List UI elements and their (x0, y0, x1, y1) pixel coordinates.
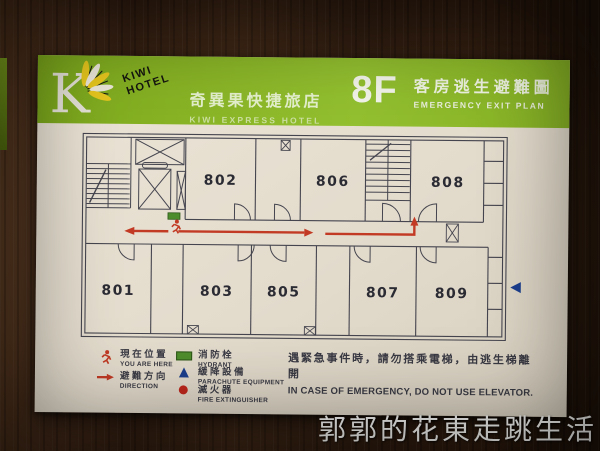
direction-arrow-icon (97, 372, 114, 382)
legend-zh: 消防栓 (198, 351, 234, 361)
left-reflection (0, 58, 7, 150)
legend-zh: 緩降設備 (198, 368, 285, 378)
sign-header: K KIWI HOTEL 奇異果快捷旅店 KI (37, 55, 570, 128)
hydrant-marker (168, 213, 180, 220)
legend-zh: 現在位置 (120, 350, 173, 360)
watermark: 郭郭的花東走跳生活 (318, 408, 597, 448)
room-label-805: 805 (267, 284, 301, 300)
notice-zh: 遇緊急事件時，請勿搭乘電梯，由逃生梯離開 (288, 349, 538, 383)
legend-parachute: 緩降設備 PARACHUTE EQUIPMENT (175, 367, 285, 386)
room-label-809: 809 (435, 286, 469, 302)
room-label-803: 803 (200, 284, 234, 300)
running-man-icon (97, 350, 114, 366)
legend-you-are-here: 現在位置 YOU ARE HERE (97, 350, 173, 369)
plan-title-zh: 客房逃生避難圖 (414, 72, 554, 97)
room-label-808: 808 (431, 175, 465, 191)
room-label-801: 801 (101, 283, 135, 299)
hydrant-icon (175, 350, 192, 360)
arrow-left-head (124, 227, 134, 235)
stairs-right-icon (365, 140, 411, 201)
hotel-name-en: KIWI EXPRESS HOTEL (189, 114, 322, 125)
stairs-left-icon (86, 137, 131, 208)
parachute-icon (175, 367, 192, 377)
floor-plan: 802 806 808 801 803 805 807 809 (77, 127, 531, 346)
legend-en: FIRE EXTINGUISHER (198, 397, 269, 404)
legend-direction: 避難方向 DIRECTION (97, 372, 168, 391)
kiwi-logo: K (47, 58, 132, 123)
header-right: 8F 客房逃生避難圖 EMERGENCY EXIT PLAN (351, 71, 554, 111)
photo-of-exit-plan-sign: K KIWI HOTEL 奇異果快捷旅店 KI (0, 0, 600, 451)
hotel-name-zh: 奇異果快捷旅店 (189, 86, 322, 111)
hotel-name-block: 奇異果快捷旅店 KIWI EXPRESS HOTEL (189, 86, 322, 125)
parachute-marker (510, 282, 521, 293)
emergency-exit-sign: K KIWI HOTEL 奇異果快捷旅店 KI (35, 55, 570, 417)
arrow-right-head (304, 229, 313, 237)
legend-zh: 滅火器 (198, 386, 269, 396)
legend-fire-extinguisher: 滅火器 FIRE EXTINGUISHER (175, 385, 269, 404)
room-label-807: 807 (366, 285, 400, 301)
service-shafts (187, 139, 459, 336)
floor-label: 8F (351, 71, 398, 109)
elevator-icon (135, 139, 186, 209)
legend-zh: 避難方向 (120, 372, 168, 382)
legend-en: DIRECTION (120, 383, 168, 390)
fire-extinguisher-icon (175, 385, 192, 394)
plan-title-block: 客房逃生避難圖 EMERGENCY EXIT PLAN (413, 72, 553, 110)
notice-en: IN CASE OF EMERGENCY, DO NOT USE ELEVATO… (288, 385, 538, 398)
room-label-806: 806 (316, 174, 350, 190)
emergency-notice: 遇緊急事件時，請勿搭乘電梯，由逃生梯離開 IN CASE OF EMERGENC… (288, 349, 538, 398)
legend-en: YOU ARE HERE (120, 361, 173, 368)
plan-title-en: EMERGENCY EXIT PLAN (413, 99, 553, 110)
room-label-802: 802 (204, 173, 238, 189)
